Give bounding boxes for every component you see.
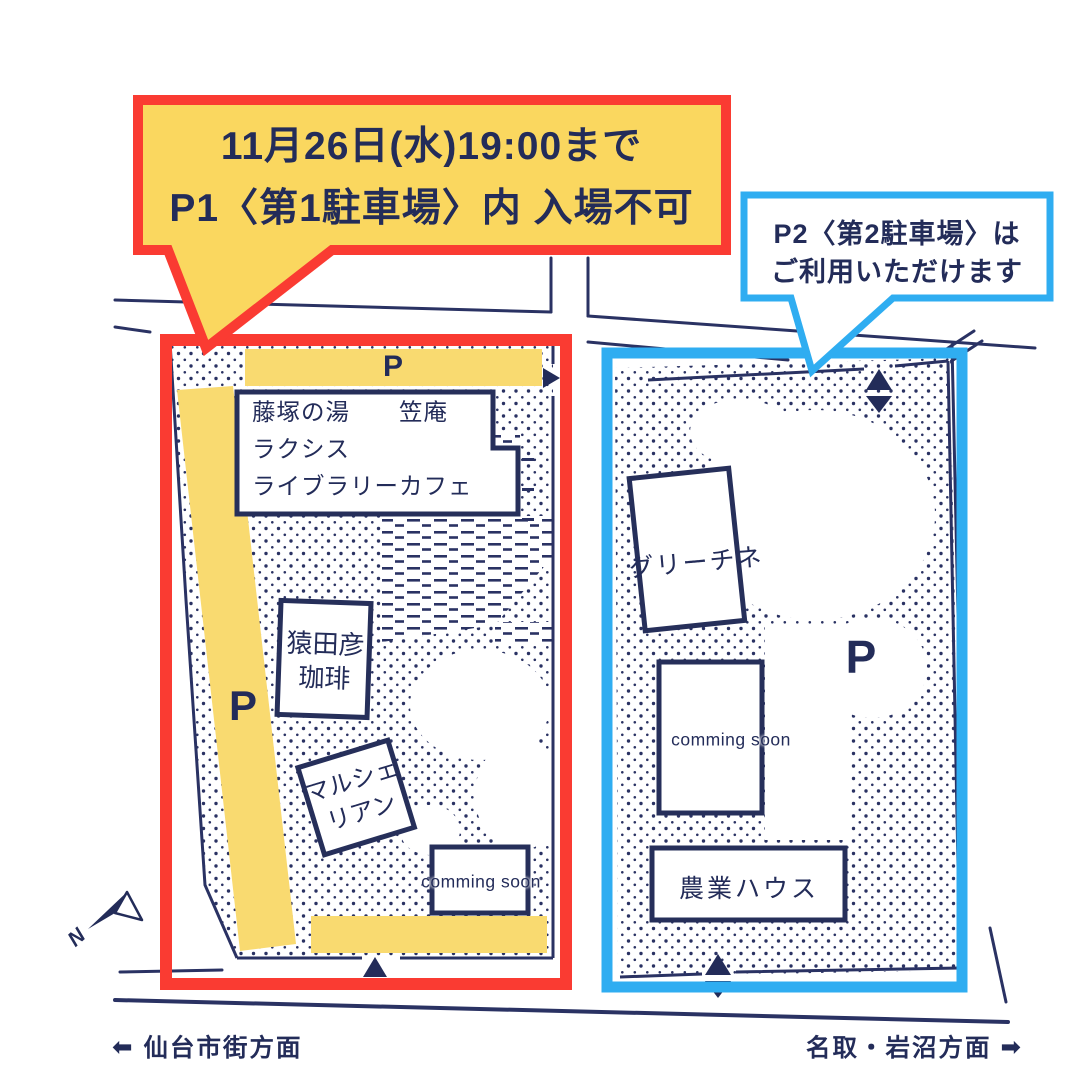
building-coffee-line1: 猿田彦 [286, 626, 365, 663]
p1-callout-line1: 11月26日(水)19:00まで [140, 116, 723, 178]
building-farm-label: 農業ハウス [679, 869, 819, 905]
p2-callout-text: P2〈第2駐車場〉は ご利用いただけます [746, 215, 1048, 291]
compass-needle-icon [88, 892, 142, 929]
p2-callout-line2: ご利用いただけます [746, 253, 1048, 291]
west-arrow-icon: ⬅ [112, 1032, 135, 1062]
direction-west: ⬅ 仙台市街方面 [112, 1029, 303, 1064]
building-main-label: 藤塚の湯 笠庵 ラクシス ライブラリーカフェ [252, 394, 473, 505]
building-coffee-label: 猿田彦 珈琲 [285, 626, 365, 697]
p1-left-strip-label: P [229, 682, 257, 730]
building-coming1-label: comming soon [421, 872, 541, 893]
p2-callout-line1: P2〈第2駐車場〉は [746, 215, 1048, 253]
p1-callout-line2: P1〈第1駐車場〉内 入場不可 [140, 178, 723, 240]
building-coffee-line2: 珈琲 [285, 660, 364, 697]
p1-top-strip-label: P [383, 350, 403, 384]
building-main-line1: 藤塚の湯 笠庵 [252, 394, 473, 431]
p1-bottom-parking-strip [311, 916, 547, 953]
building-coming2-label: comming soon [671, 730, 791, 751]
parking-map-canvas: 11月26日(水)19:00まで P1〈第1駐車場〉内 入場不可 P2〈第2駐車… [0, 0, 1080, 1080]
building-main-line3: ライブラリーカフェ [252, 468, 473, 505]
p2-area-label: P [846, 630, 877, 684]
direction-west-label: 仙台市街方面 [144, 1029, 303, 1064]
east-arrow-icon: ➡ [1001, 1032, 1024, 1062]
p1-entrance-up-arrow-icon [363, 957, 387, 977]
direction-east-label: 名取・岩沼方面 [806, 1029, 992, 1064]
direction-east: 名取・岩沼方面 ➡ [806, 1029, 1023, 1064]
building-main-line2: ラクシス [252, 431, 473, 468]
p1-callout-text: 11月26日(水)19:00まで P1〈第1駐車場〉内 入場不可 [140, 116, 723, 240]
